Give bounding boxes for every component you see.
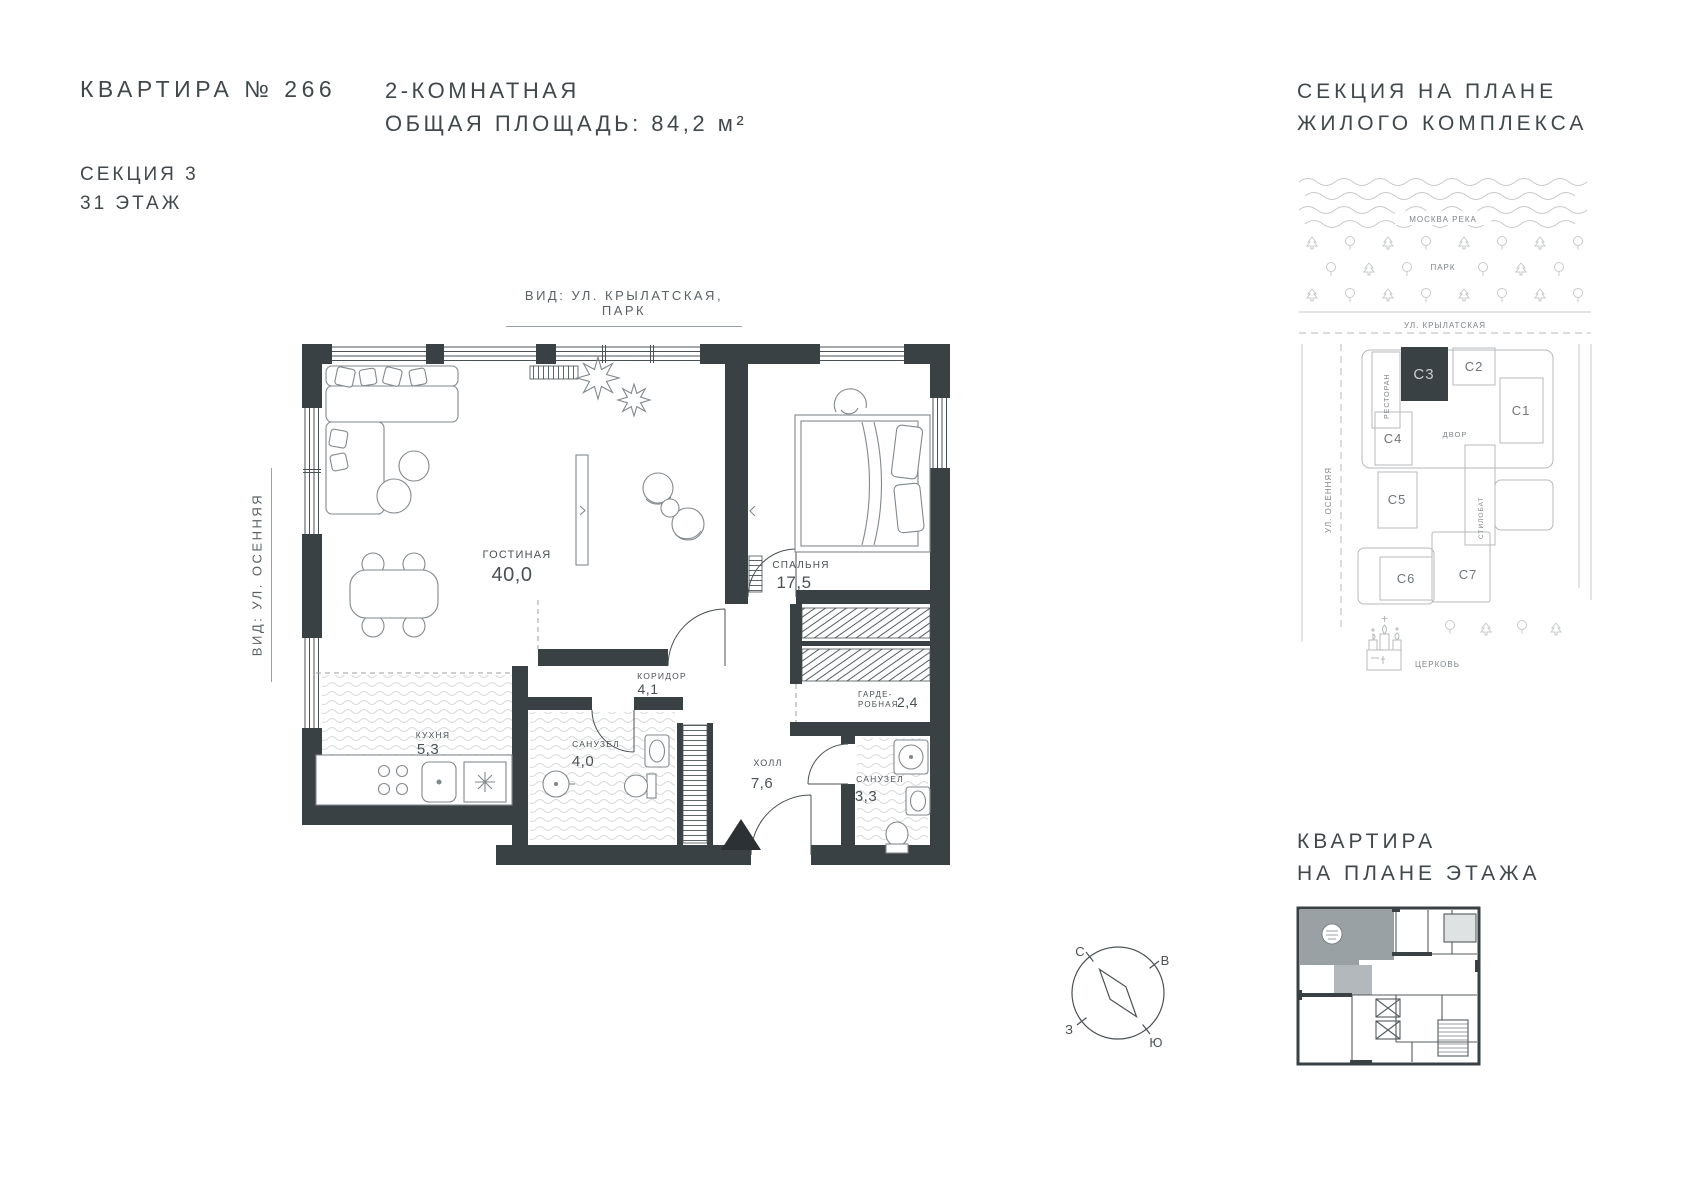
mini-floor-plan (1292, 902, 1488, 1070)
room-area: 3,3 (855, 788, 877, 805)
radiator-icon (749, 556, 762, 592)
room-label: КУХНЯ (416, 730, 450, 740)
bottom-trees (1446, 621, 1562, 636)
street-top-label: УЛ. КРЫЛАТСКАЯ (1404, 321, 1486, 330)
mini-plan-title-line2: НА ПЛАНЕ ЭТАЖА (1297, 858, 1541, 890)
bed (795, 415, 930, 552)
river-label: МОСКВА РЕКА (1409, 215, 1477, 224)
view-top-label: ВИД: УЛ. КРЫЛАТСКАЯ, ПАРК (506, 288, 742, 327)
apartment-badge (1322, 924, 1342, 944)
room-label: ГОСТИНАЯ (483, 549, 552, 561)
stylobate-label: СТИЛОБАТ (1478, 497, 1485, 539)
section-label: СЕКЦИЯ 3 (80, 160, 199, 189)
chevron-left-icon (750, 506, 755, 516)
room-area: 4,1 (638, 681, 659, 697)
apartment-title: КВАРТИРА № 266 (80, 76, 336, 103)
compass: С В З Ю (1048, 923, 1188, 1063)
section-c5-label: С5 (1388, 492, 1407, 507)
room-label: СПАЛЬНЯ (772, 560, 829, 571)
room-area: 17,5 (776, 573, 811, 592)
room-area: 4,0 (572, 753, 594, 770)
site-plan-title-line2: ЖИЛОГО КОМПЛЕКСА (1297, 108, 1587, 140)
compass-ticks (1077, 952, 1159, 1034)
church-icon (1367, 616, 1401, 670)
entry-arrow-icon (721, 819, 761, 850)
view-left-rule (271, 468, 272, 682)
compass-west: З (1065, 1022, 1073, 1037)
room-label: ХОЛЛ (753, 758, 782, 768)
tv-unit (576, 455, 588, 565)
park-label: ПАРК (1430, 263, 1455, 272)
pouf (377, 479, 411, 513)
room-label: РОБНАЯ (858, 700, 899, 709)
compass-south: Ю (1149, 1035, 1162, 1050)
site-plan-title-line1: СЕКЦИЯ НА ПЛАНЕ (1297, 76, 1587, 108)
church-label: ЦЕРКОВЬ (1415, 660, 1460, 669)
section-c2-label: С2 (1465, 359, 1484, 374)
floor-plan: ГОСТИНАЯ 40,0 СПАЛЬНЯ 17,5 КОРИДОР 4,1 К… (296, 338, 966, 888)
section-floor-block: СЕКЦИЯ 3 31 ЭТАЖ (80, 160, 199, 218)
site-plan-title: СЕКЦИЯ НА ПЛАНЕ ЖИЛОГО КОМПЛЕКСА (1297, 76, 1587, 140)
room-label: КОРИДОР (637, 671, 687, 681)
room-label: САНУЗЕЛ (572, 739, 620, 749)
bedroom-armchair (834, 389, 866, 414)
room-area: 5,3 (417, 741, 439, 758)
compass-north: С (1075, 944, 1084, 959)
compass-east: В (1161, 953, 1170, 968)
apartment-specs: 2-КОМНАТНАЯ ОБЩАЯ ПЛОЩАДЬ: 84,2 м² (385, 74, 747, 140)
mini-plan-title: КВАРТИРА НА ПЛАНЕ ЭТАЖА (1297, 826, 1541, 890)
courtyard-label: ДВОР (1443, 430, 1468, 439)
room-label: САНУЗЕЛ (856, 774, 904, 784)
section-c7-label: С7 (1459, 567, 1478, 582)
mini-plan-title-line1: КВАРТИРА (1297, 826, 1541, 858)
compass-circle (1072, 947, 1164, 1039)
rooms-type: 2-КОМНАТНАЯ (385, 74, 747, 107)
total-area: ОБЩАЯ ПЛОЩАДЬ: 84,2 м² (385, 107, 747, 140)
radiator-icon (530, 366, 578, 379)
view-left-label: ВИД: УЛ. ОСЕННЯЯ (250, 455, 265, 695)
section-c6-label: С6 (1397, 571, 1416, 586)
room-area: 2,4 (897, 694, 918, 710)
restaurant-label: РЕСТОРАН (1384, 374, 1391, 420)
section-c1-label: С1 (1512, 403, 1531, 418)
room-label: ГАРДЕ- (858, 690, 893, 699)
compass-needle (1100, 969, 1137, 1016)
plant-icon (577, 357, 650, 416)
section-c3-label: С3 (1413, 366, 1434, 383)
dining-set (350, 553, 438, 637)
floor-label: 31 ЭТАЖ (80, 189, 199, 218)
armchair-cluster (643, 473, 704, 540)
pouf (399, 451, 429, 481)
site-plan-map: МОСКВА РЕКА ПАРК УЛ. КРЫЛАТСКАЯ УЛ. ОСЕН… (1295, 170, 1595, 680)
room-area: 40,0 (492, 564, 533, 586)
section-c4-label: С4 (1384, 431, 1403, 446)
kitchen-counter (316, 755, 512, 805)
room-area: 7,6 (751, 775, 773, 792)
street-left-label: УЛ. ОСЕННЯЯ (1324, 467, 1333, 533)
